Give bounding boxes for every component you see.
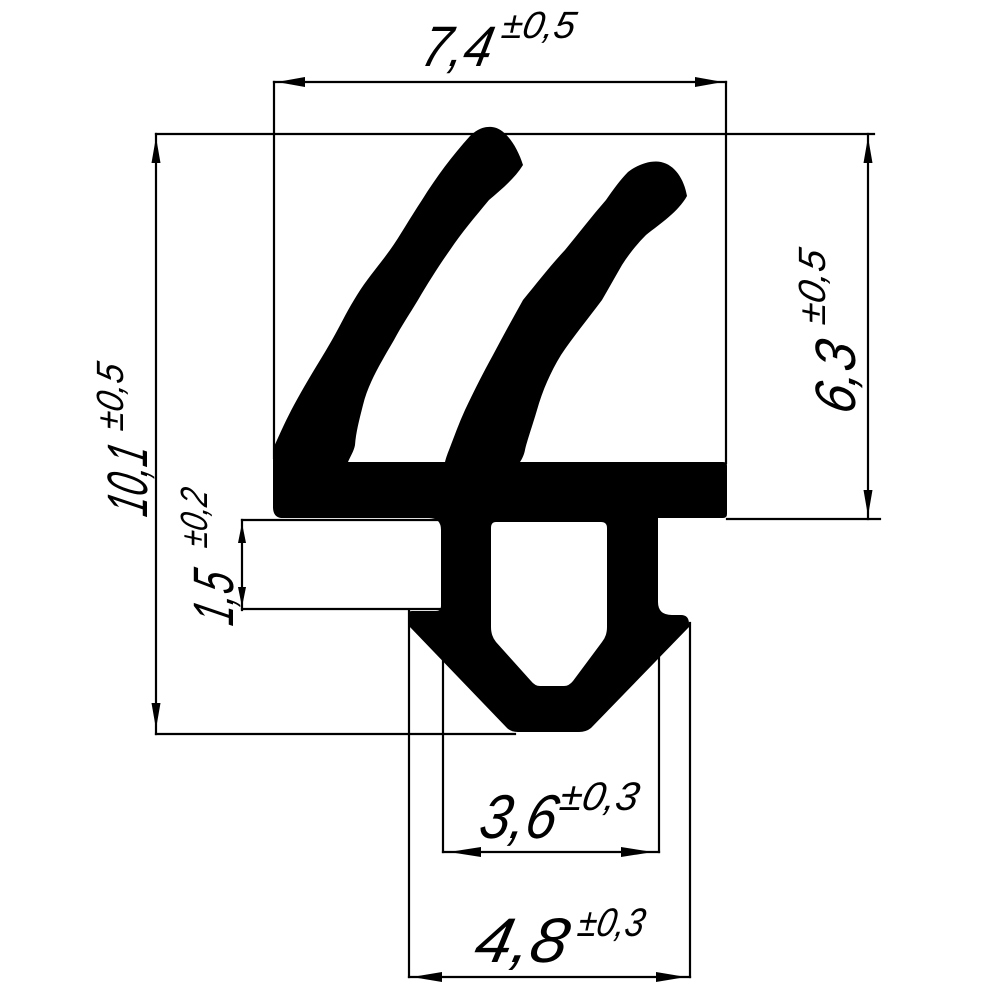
svg-text:6,3: 6,3 (805, 334, 868, 418)
svg-text:3,6: 3,6 (474, 783, 565, 852)
svg-text:±0,3: ±0,3 (556, 773, 644, 818)
svg-text:±0,5: ±0,5 (498, 4, 581, 47)
svg-text:7,4: 7,4 (416, 16, 499, 79)
svg-text:10,1: 10,1 (97, 437, 160, 520)
svg-text:1,5: 1,5 (183, 564, 246, 630)
svg-text:±0,5: ±0,5 (89, 358, 132, 434)
svg-text:±0,5: ±0,5 (791, 244, 834, 328)
svg-text:±0,3: ±0,3 (574, 899, 650, 944)
svg-text:4,8: 4,8 (469, 906, 577, 976)
svg-text:±0,2: ±0,2 (173, 484, 216, 551)
